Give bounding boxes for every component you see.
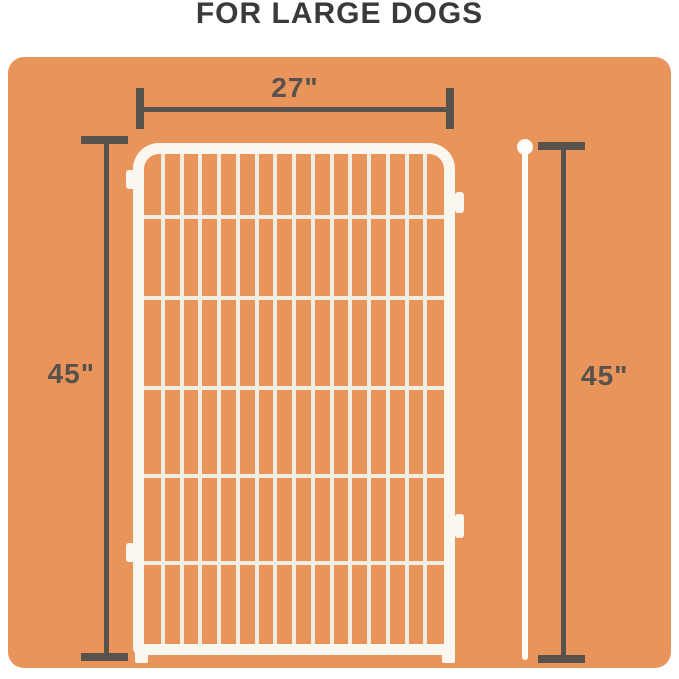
height-right-dimension-line [561,146,566,658]
height-right-dimension-label: 45" [581,360,628,392]
height-left-dimension-label: 45" [20,358,95,390]
stake-rod [522,152,528,660]
height-left-dimension-cap-bottom [81,653,128,661]
fence-connector-tab-right-bottom [455,514,464,538]
fence-connector-tab-right-top [455,192,464,213]
height-left-dimension-cap-top [81,136,128,144]
width-dimension-line [140,107,450,112]
height-right-dimension-cap-top [538,142,585,150]
fence-connector-tab-left-top [126,170,135,189]
height-right-dimension-cap-bottom [538,655,585,663]
fence-panel-frame [133,143,455,655]
height-left-dimension-line [104,140,109,658]
width-dimension-label: 27" [140,72,450,104]
page-title: FOR LARGE DOGS [0,0,679,31]
stage: FOR LARGE DOGS 27" 45" 45" [0,0,679,679]
fence-connector-tab-left-bottom [126,543,135,562]
